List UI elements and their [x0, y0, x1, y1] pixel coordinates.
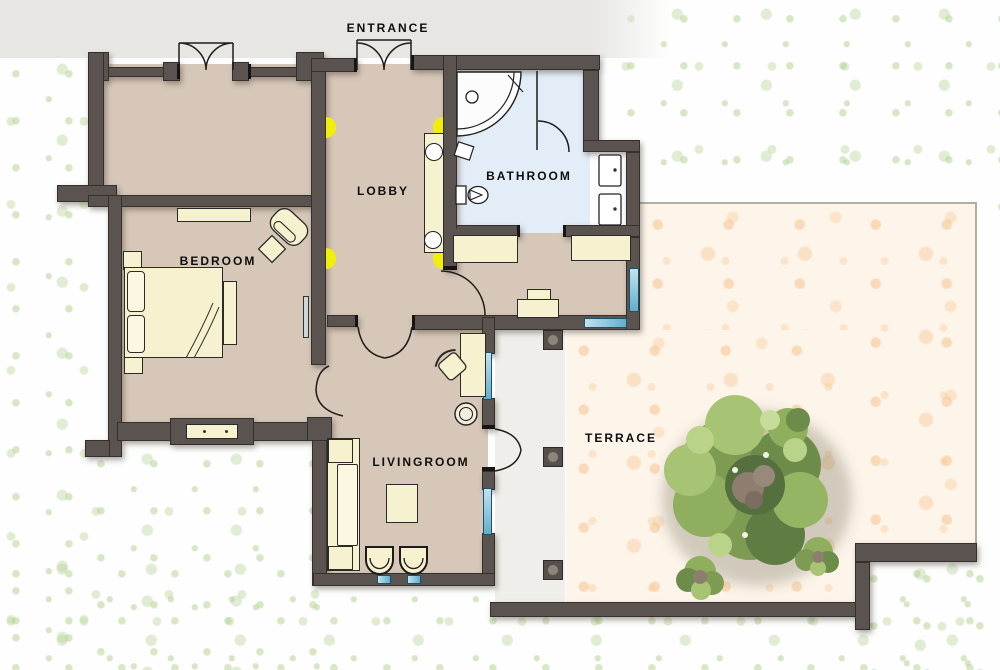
shower — [454, 72, 523, 160]
terrace-label: TERRACE — [585, 431, 657, 445]
toilet — [456, 186, 488, 204]
bathroom-label: BATHROOM — [486, 169, 572, 183]
desk-chair — [432, 346, 469, 383]
dressing-door — [441, 271, 485, 315]
bedroom-double-swing-door — [316, 366, 343, 416]
sink-2 — [599, 194, 621, 225]
terrace-french-doors — [495, 429, 521, 471]
storage-double-door — [179, 43, 233, 70]
tub-chair-1 — [366, 547, 393, 574]
shower-drain — [466, 91, 478, 103]
livingroom-label: LIVINGROOM — [372, 455, 469, 469]
bedroom-label: BEDROOM — [180, 254, 257, 268]
lobby-label: LOBBY — [357, 184, 409, 198]
plan-overlay — [0, 0, 1000, 670]
ottoman — [259, 236, 286, 263]
lobby-living-double-door — [358, 327, 412, 358]
round-table — [455, 403, 477, 425]
tub-chair-2 — [400, 547, 427, 574]
bathroom-partition-and-door — [537, 71, 569, 152]
entrance-label: ENTRANCE — [347, 21, 430, 35]
entrance-double-door — [357, 40, 411, 70]
bed-blanket-folds — [186, 303, 219, 358]
bedroom-armchair — [259, 205, 312, 263]
sink-1 — [599, 155, 621, 186]
floor-plan: ENTRANCE LOBBY BATHROOM BEDROOM LIVINGRO… — [0, 0, 1000, 670]
